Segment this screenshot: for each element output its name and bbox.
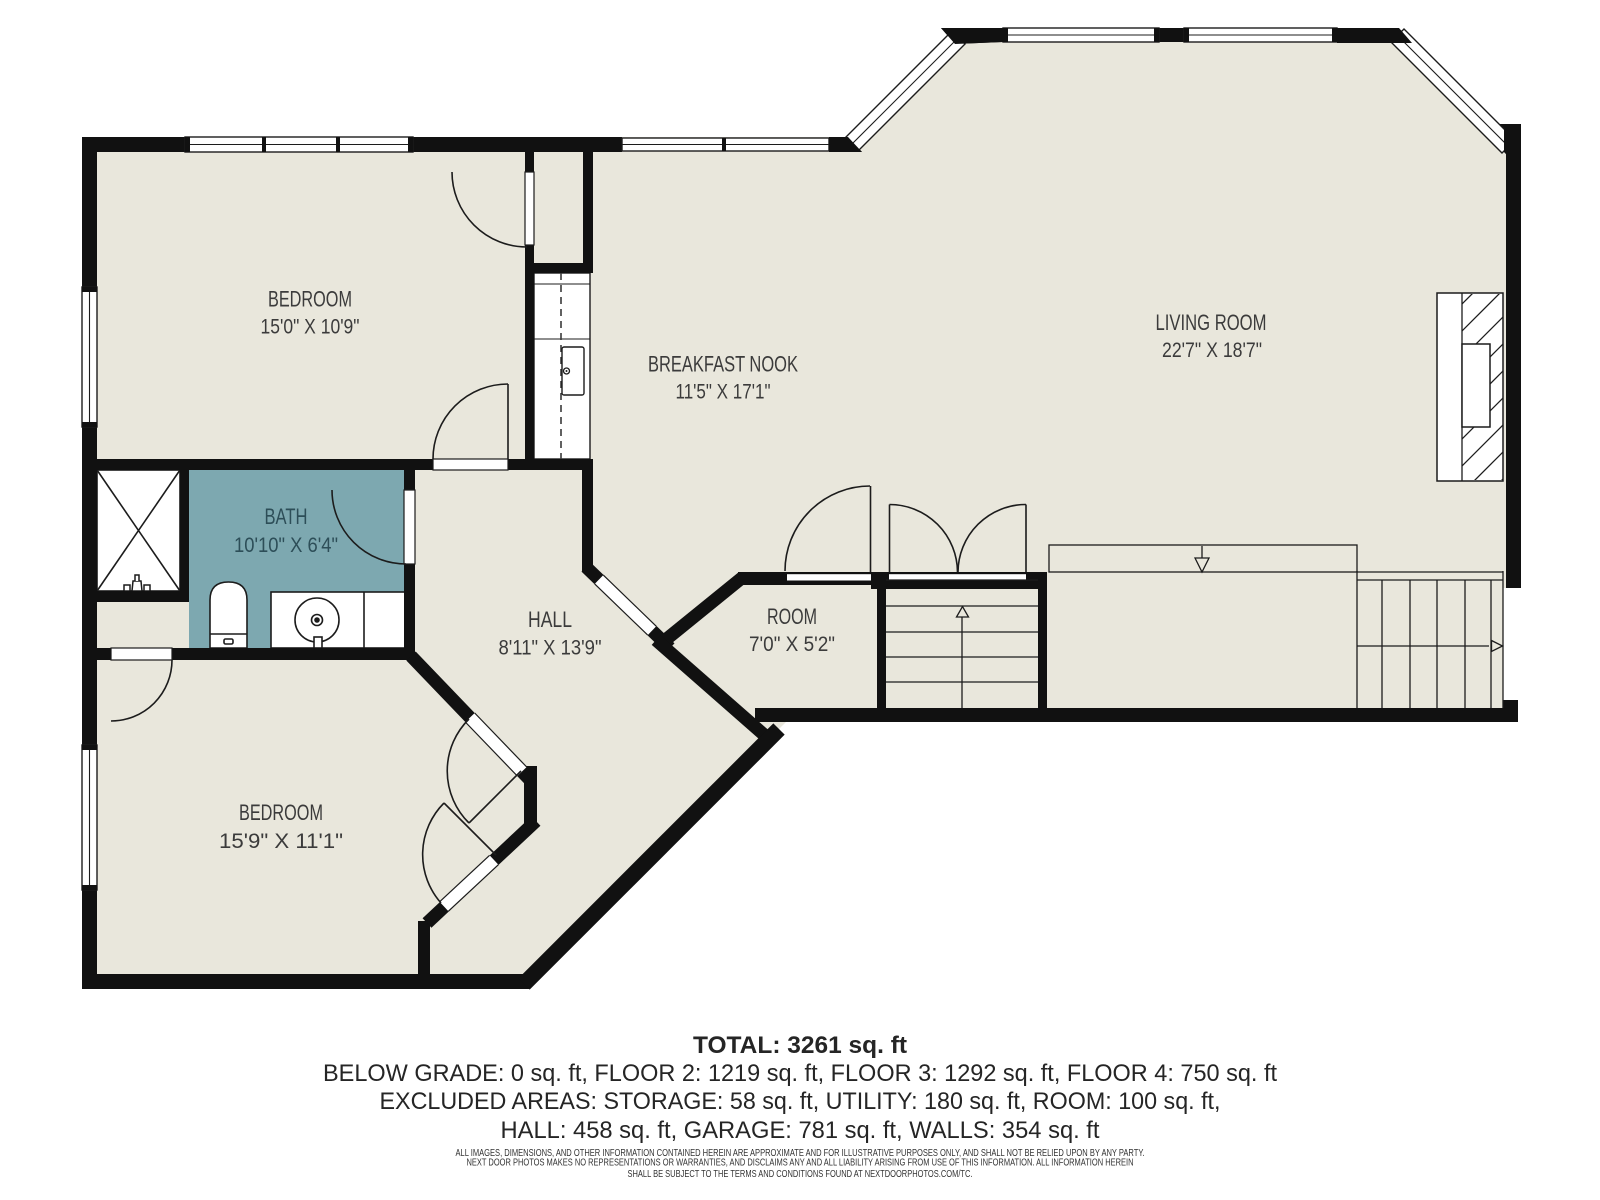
svg-text:HALL: 458 sq. ft, GARAGE: 781: HALL: 458 sq. ft, GARAGE: 781 sq. ft, WA…	[501, 1117, 1100, 1144]
svg-text:BREAKFAST NOOK: BREAKFAST NOOK	[648, 352, 798, 377]
svg-text:10'10" X 6'4": 10'10" X 6'4"	[234, 534, 338, 557]
svg-text:8'11" X 13'9": 8'11" X 13'9"	[499, 637, 602, 660]
svg-text:SHALL BE SUBJECT TO THE TERMS: SHALL BE SUBJECT TO THE TERMS AND CONDIT…	[628, 1169, 973, 1180]
svg-text:EXCLUDED AREAS: STORAGE: 58 sq: EXCLUDED AREAS: STORAGE: 58 sq. ft, UTIL…	[380, 1088, 1221, 1115]
svg-text:15'0" X 10'9": 15'0" X 10'9"	[261, 316, 360, 339]
svg-text:11'5" X 17'1": 11'5" X 17'1"	[676, 381, 771, 404]
svg-text:15'9" X 11'1": 15'9" X 11'1"	[219, 830, 343, 853]
svg-text:BATH: BATH	[265, 504, 308, 529]
svg-text:7'0" X 5'2": 7'0" X 5'2"	[749, 633, 835, 656]
svg-text:BEDROOM: BEDROOM	[239, 800, 323, 825]
svg-text:BEDROOM: BEDROOM	[268, 287, 352, 312]
svg-text:LIVING ROOM: LIVING ROOM	[1156, 310, 1267, 335]
svg-text:ROOM: ROOM	[767, 604, 817, 629]
svg-text:HALL: HALL	[528, 607, 572, 632]
svg-text:TOTAL: 3261 sq. ft: TOTAL: 3261 sq. ft	[693, 1032, 907, 1059]
svg-text:22'7" X 18'7": 22'7" X 18'7"	[1162, 339, 1262, 362]
svg-text:NEXT DOOR PHOTOS MAKES NO REPR: NEXT DOOR PHOTOS MAKES NO REPRESENTATION…	[467, 1158, 1134, 1169]
svg-text:BELOW GRADE: 0 sq. ft, FLOOR 2: BELOW GRADE: 0 sq. ft, FLOOR 2: 1219 sq.…	[323, 1060, 1277, 1087]
